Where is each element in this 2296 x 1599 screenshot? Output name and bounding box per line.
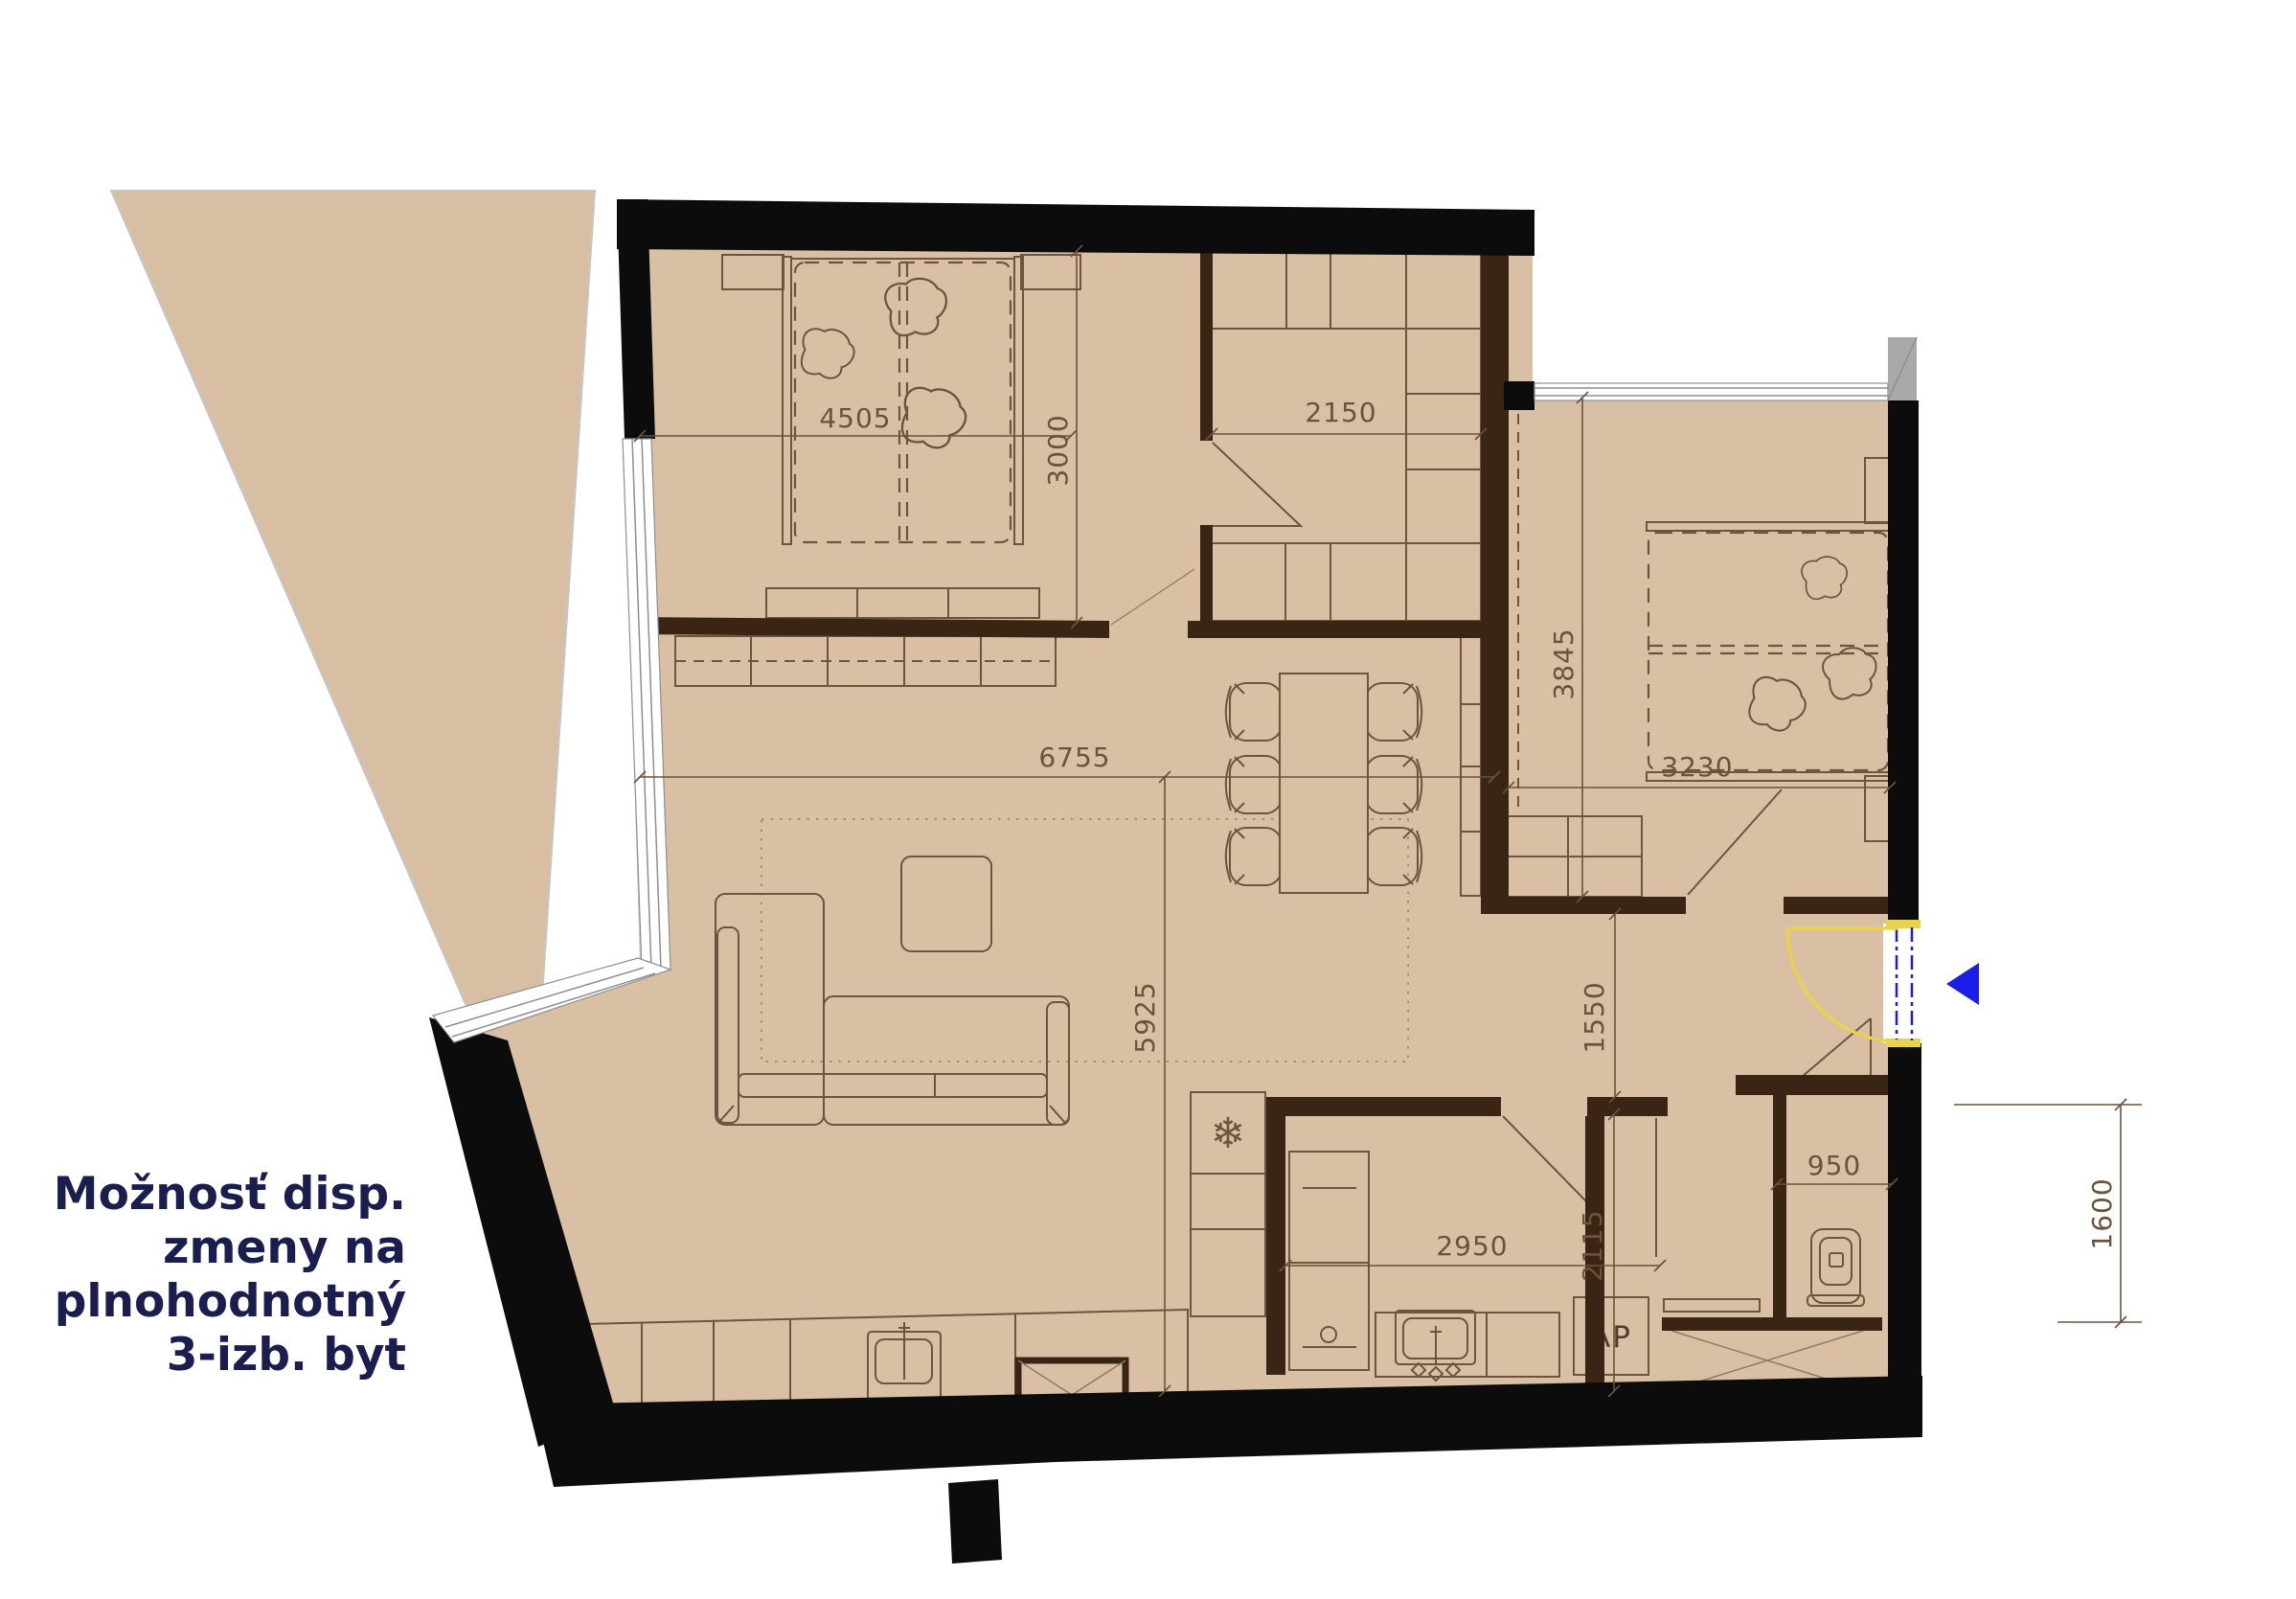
wall-bath-top [1587, 1097, 1668, 1116]
svg-text:2115: 2115 [1577, 1209, 1608, 1281]
tagline-line-4: 3-izb. byt [167, 1329, 406, 1382]
tagline-line-3: plnohodnotný [55, 1275, 406, 1328]
svg-text:3845: 3845 [1548, 628, 1580, 699]
wall-right-lower [1888, 1041, 1921, 1401]
wall-right-upper [1888, 400, 1919, 925]
tagline: Možnosť disp. zmeny na plnohodnotný 3-iz… [54, 1168, 406, 1382]
terrace-floor [111, 191, 595, 1048]
svg-text:6755: 6755 [1038, 742, 1110, 773]
svg-text:2150: 2150 [1305, 397, 1376, 428]
wall-closet-bottom [1188, 621, 1481, 638]
floor-plan-page: ❄ AP [0, 0, 2296, 1599]
svg-text:2950: 2950 [1436, 1230, 1508, 1262]
wall-bath-wc [1773, 1095, 1786, 1331]
entrance-arrow-icon [1946, 963, 1979, 1005]
freezer-icon: ❄ [1211, 1109, 1246, 1158]
wall-top [617, 199, 1534, 256]
wall-closet-left [1200, 245, 1213, 441]
wall-kitchen-top [1266, 1097, 1501, 1116]
wall-stub [948, 1479, 1002, 1564]
door-opening [1883, 924, 1923, 1043]
tagline-line-2: zmeny na [163, 1222, 406, 1274]
tagline-line-1: Možnosť disp. [54, 1168, 406, 1221]
dining-table [1280, 674, 1368, 893]
svg-text:950: 950 [1807, 1150, 1861, 1181]
wall-wc-top [1736, 1075, 1892, 1095]
wall-closet-right [1481, 245, 1509, 914]
svg-text:3000: 3000 [1042, 414, 1074, 486]
svg-text:1550: 1550 [1579, 981, 1610, 1053]
floor-plan-drawing: ❄ AP [0, 0, 2296, 1599]
svg-text:4505: 4505 [819, 402, 891, 434]
terrace [111, 191, 595, 1048]
svg-text:3230: 3230 [1661, 751, 1733, 783]
wall-closet-left [1200, 525, 1213, 632]
wall-bedroom2-bottom [1784, 897, 1894, 914]
svg-text:1600: 1600 [2086, 1177, 2118, 1249]
wall-corner [1504, 381, 1534, 410]
svg-text:5925: 5925 [1129, 981, 1161, 1053]
wall-kitchen-left [1266, 1097, 1285, 1375]
wall-bath-bottom [1662, 1317, 1882, 1331]
wall-bedroom2-bottom [1481, 897, 1686, 914]
dim-entry-side: 1600 [1954, 1099, 2142, 1328]
